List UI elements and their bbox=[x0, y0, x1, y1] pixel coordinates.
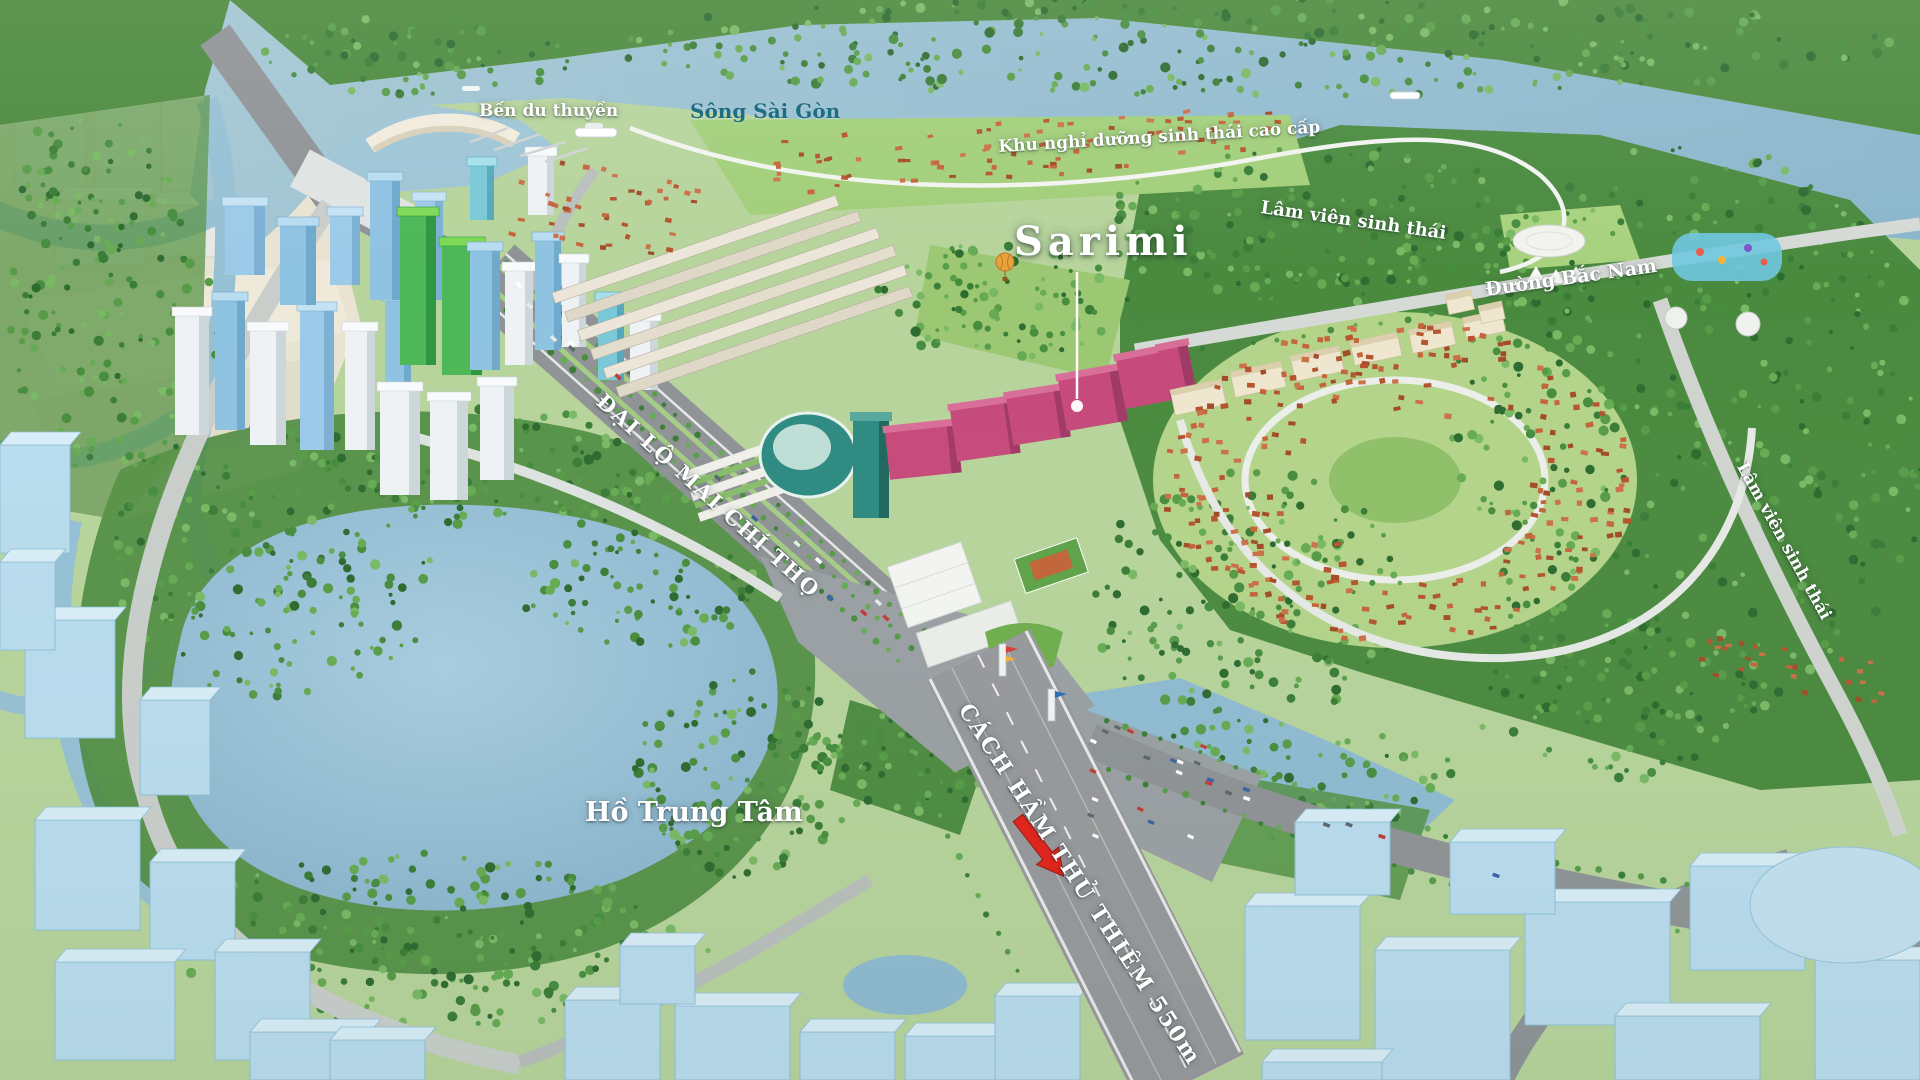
light-sheen-overlay bbox=[0, 0, 1920, 1080]
aerial-masterplan-map: Bến du thuyền Sông Sài Gòn Khu nghỉ dưỡn… bbox=[0, 0, 1920, 1080]
rendered-aerial-scene bbox=[0, 0, 1920, 1080]
river-label: Sông Sài Gòn bbox=[690, 101, 840, 121]
marina-label: Bến du thuyền bbox=[479, 103, 618, 120]
central-lake-label: Hồ Trung Tâm bbox=[585, 799, 803, 826]
project-name-label: Sarimi bbox=[1014, 222, 1193, 262]
